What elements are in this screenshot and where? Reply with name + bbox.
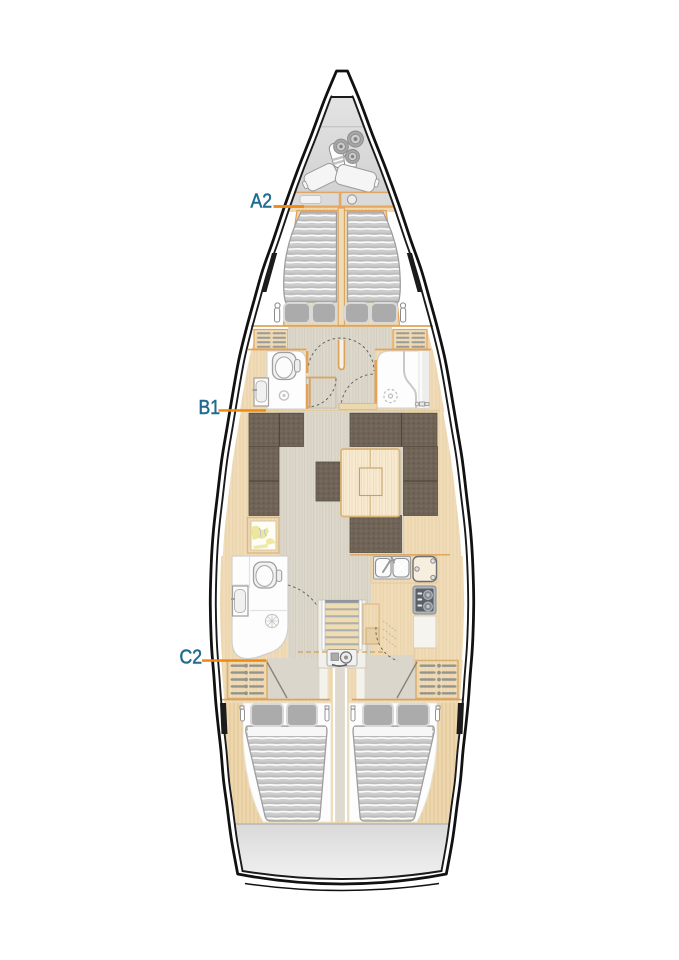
svg-text:B1: B1 — [199, 396, 221, 418]
svg-text:C2: C2 — [180, 645, 202, 667]
svg-text:A2: A2 — [251, 189, 273, 211]
